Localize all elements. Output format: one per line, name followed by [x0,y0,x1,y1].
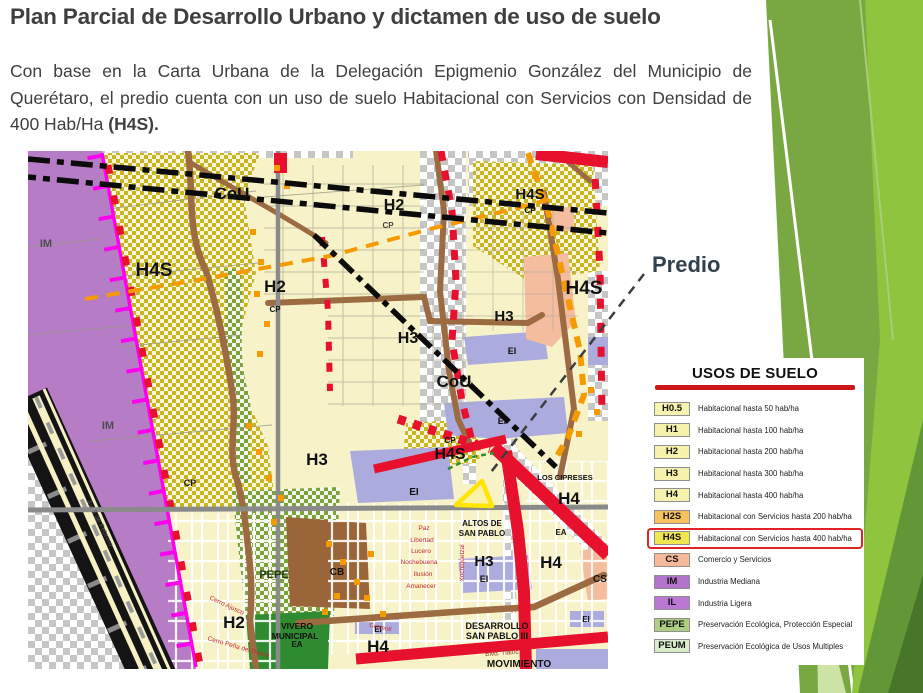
map-label: EA [555,528,566,537]
slide-title: Plan Parcial de Desarrollo Urbano y dict… [10,4,780,30]
legend-swatch: H4S [654,531,690,545]
map-label: H4S [434,446,465,463]
map-label: EI [409,487,419,498]
slide: { "slide": { "title": "Plan Parcial de D… [0,0,923,693]
legend-row: IMIndustria Mediana [654,571,856,593]
legend-label: Preservación Ecológica de Usos Multiples [698,642,843,651]
map-label: H4S [515,186,544,203]
legend-label: Industria Ligera [698,599,752,608]
legend-row: PEPEPreservación Ecológica, Protección E… [654,614,856,636]
map-label: Libertad [410,537,434,544]
map-label: DESARROLLO [466,621,529,631]
map-label: CP [269,305,281,314]
legend-row: H4Habitacional hasta 400 hab/ha [654,484,856,506]
map-label: LOS CIPRESES [537,473,592,482]
map-label: CP [382,221,394,230]
map-label: IM [40,238,52,250]
legend-label: Habitacional hasta 300 hab/ha [698,469,803,478]
map-label: EI [498,416,507,426]
legend-label: Preservación Ecológica, Protección Espec… [698,620,852,629]
map-label: EA [291,640,302,649]
legend-label: Habitacional hasta 50 hab/ha [698,404,799,413]
map-label: H3 [306,450,328,469]
map-label: H3 [398,330,419,347]
map-label: SAN PABLO III [466,631,528,641]
map-label: SAN PABLO [459,529,506,538]
legend-swatch: H4 [654,488,690,502]
legend-swatch: CS [654,553,690,567]
legend-swatch: H2 [654,445,690,459]
map-label: CP [444,436,456,445]
map-label: CP [184,478,197,488]
legend-swatch: IL [654,596,690,610]
legend-row: H3Habitacional hasta 300 hab/ha [654,463,856,485]
legend-swatch: PEUM [654,639,690,653]
map-label: CS [593,574,607,585]
legend-label: Habitacional con Servicios hasta 200 hab… [698,512,852,521]
legend-row: CSComercio y Servicios [654,549,856,571]
map-label: H4S [136,260,173,281]
legend-panel: USOS DE SUELO H0.5Habitacional hasta 50 … [646,358,864,665]
land-use-map: CoUH2CPIMH4SCPIMH2CPH4SCPH4SH3H3CoUEIEIE… [28,151,608,669]
legend-swatch: PEPE [654,618,690,632]
legend-label: Comercio y Servicios [698,555,771,564]
body-paragraph: Con base en la Carta Urbana de la Delega… [10,58,752,138]
map-label: H4 [558,489,580,508]
map-label: CoU [215,184,250,203]
legend-label: Habitacional hasta 400 hab/ha [698,491,803,500]
map-label: H4S [566,278,603,299]
legend-title-underline [655,385,855,390]
map-label: H3 [474,553,493,570]
legend-rows: H0.5Habitacional hasta 50 hab/haH1Habita… [654,398,856,657]
legend-swatch: H0.5 [654,402,690,416]
legend-swatch: H3 [654,467,690,481]
map-label: H4 [367,637,389,656]
map-label: Xochiquetzal [459,544,466,582]
map-label: H2 [264,277,286,296]
legend-label: Industria Mediana [698,577,760,586]
legend-swatch: IM [654,575,690,589]
map-label: Amanecer [406,583,436,590]
legend-label: Habitacional hasta 100 hab/ha [698,426,803,435]
map-label: H4 [540,553,562,572]
legend-swatch: H1 [654,423,690,437]
map-label: ALTOS DE [462,519,502,528]
map-label: Paz [418,525,429,532]
legend-row: H0.5Habitacional hasta 50 hab/ha [654,398,856,420]
map-label: EI [582,615,590,624]
land-use-map-svg: CoUH2CPIMH4SCPIMH2CPH4SCPH4SH3H3CoUEIEIE… [28,151,608,669]
map-label: EI [480,574,489,584]
legend-row: PEUMPreservación Ecológica de Usos Multi… [654,636,856,658]
legend-swatch: H2S [654,510,690,524]
map-label: H3 [494,308,513,325]
body-text-bold-h4s: (H4S). [108,114,159,134]
map-label: MOVIMIENTO [487,659,551,669]
map-label: CB [330,567,344,578]
legend-row: H1Habitacional hasta 100 hab/ha [654,420,856,442]
map-label: Lucero [411,548,431,555]
predio-label: Predio [652,252,720,278]
map-label: H2 [384,197,405,214]
map-label: EI [508,346,517,356]
map-label: CoU [437,372,472,391]
map-label: IM [102,420,114,432]
legend-label: Habitacional hasta 200 hab/ha [698,447,803,456]
map-label: PEPE [259,569,288,581]
map-label: CP [524,206,536,215]
legend-label: Habitacional con Servicios hasta 400 hab… [698,534,852,543]
map-label: VIVERO [281,621,314,631]
legend-row: H2Habitacional hasta 200 hab/ha [654,441,856,463]
map-label: Nochebuena [401,559,438,566]
legend-row: ILIndustria Ligera [654,592,856,614]
legend-title: USOS DE SUELO [654,365,856,382]
legend-row: H4SHabitacional con Servicios hasta 400 … [647,528,863,550]
map-label: Ilusión [414,571,433,578]
legend-row: H2SHabitacional con Servicios hasta 200 … [654,506,856,528]
